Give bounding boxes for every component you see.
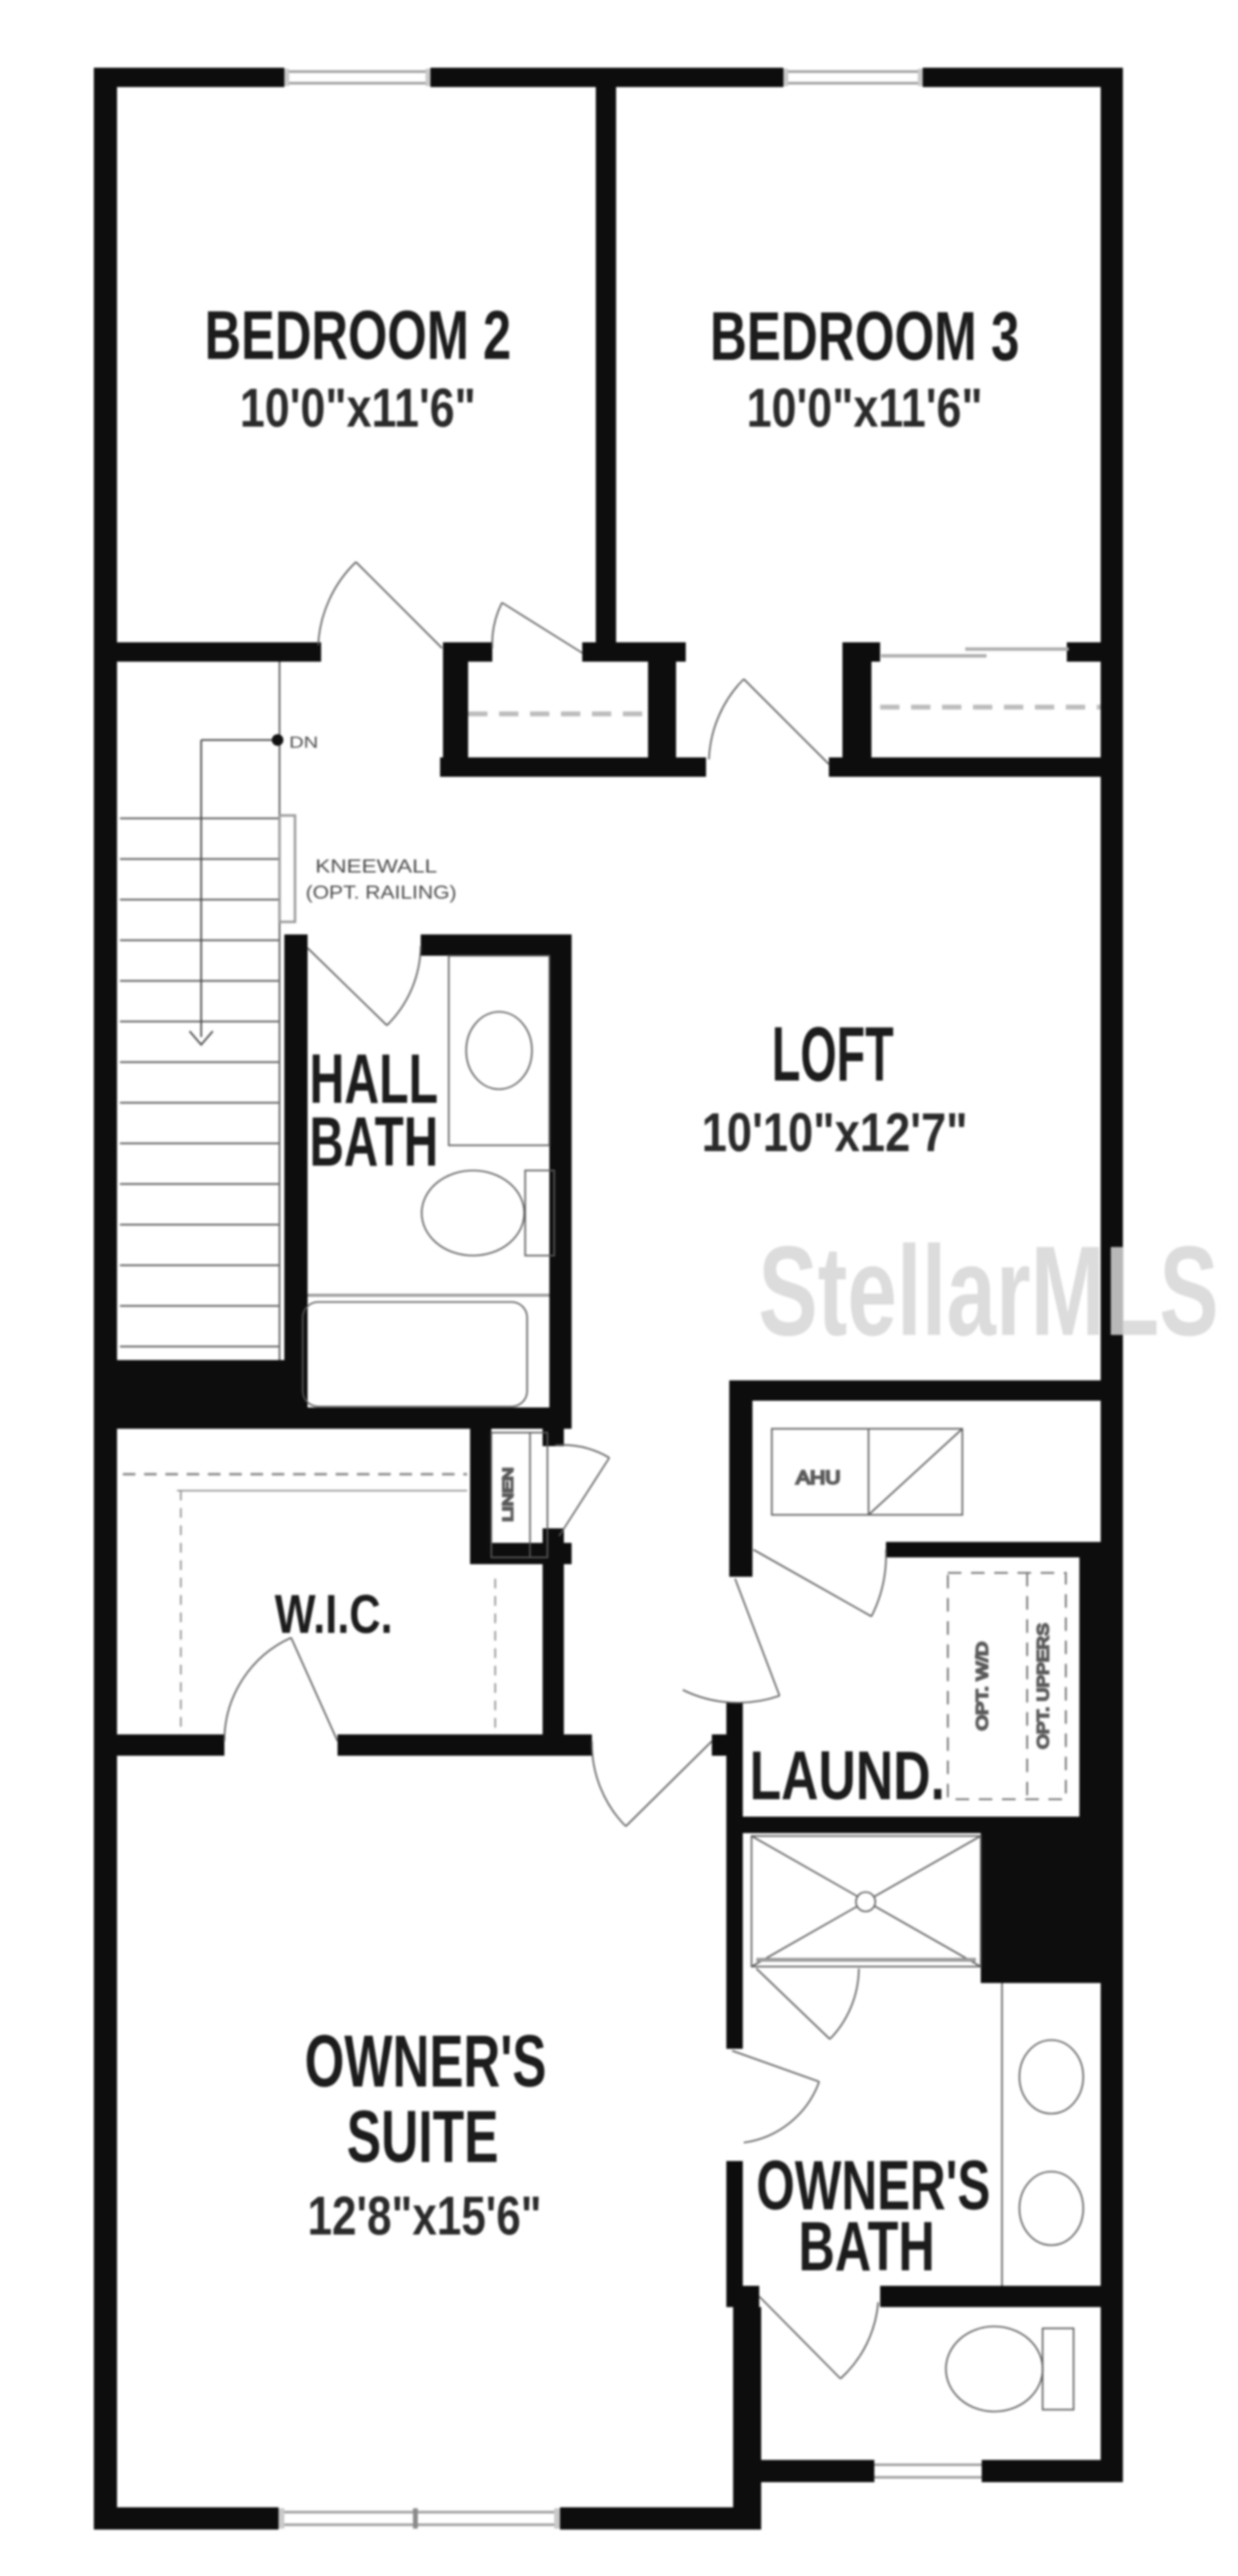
- svg-text:BATH: BATH: [799, 2208, 935, 2286]
- svg-text:LINEN: LINEN: [500, 1467, 516, 1522]
- svg-text:10'10"x12'7": 10'10"x12'7": [702, 1102, 968, 1164]
- svg-text:BATH: BATH: [309, 1104, 438, 1181]
- svg-text:StellarMLS: StellarMLS: [758, 1220, 1219, 1362]
- svg-text:AHU: AHU: [796, 1468, 840, 1489]
- svg-text:W.I.C.: W.I.C.: [275, 1584, 393, 1645]
- svg-text:10'0"x11'6": 10'0"x11'6": [747, 377, 983, 439]
- svg-text:BEDROOM 2: BEDROOM 2: [205, 298, 512, 374]
- svg-text:OPT. W/D: OPT. W/D: [973, 1642, 991, 1731]
- svg-text:OPT. UPPERS: OPT. UPPERS: [1034, 1623, 1052, 1749]
- svg-text:(OPT. RAILING): (OPT. RAILING): [306, 883, 457, 903]
- svg-text:OWNER'S: OWNER'S: [305, 2021, 546, 2103]
- svg-text:LOFT: LOFT: [772, 1011, 894, 1097]
- svg-text:10'0"x11'6": 10'0"x11'6": [240, 377, 476, 439]
- svg-text:DN: DN: [289, 733, 318, 752]
- svg-text:12'8"x15'6": 12'8"x15'6": [308, 2185, 542, 2247]
- svg-text:SUITE: SUITE: [347, 2096, 499, 2178]
- svg-text:BEDROOM 3: BEDROOM 3: [710, 299, 1019, 375]
- svg-text:KNEEWALL: KNEEWALL: [315, 857, 437, 877]
- svg-text:LAUND.: LAUND.: [750, 1738, 945, 1815]
